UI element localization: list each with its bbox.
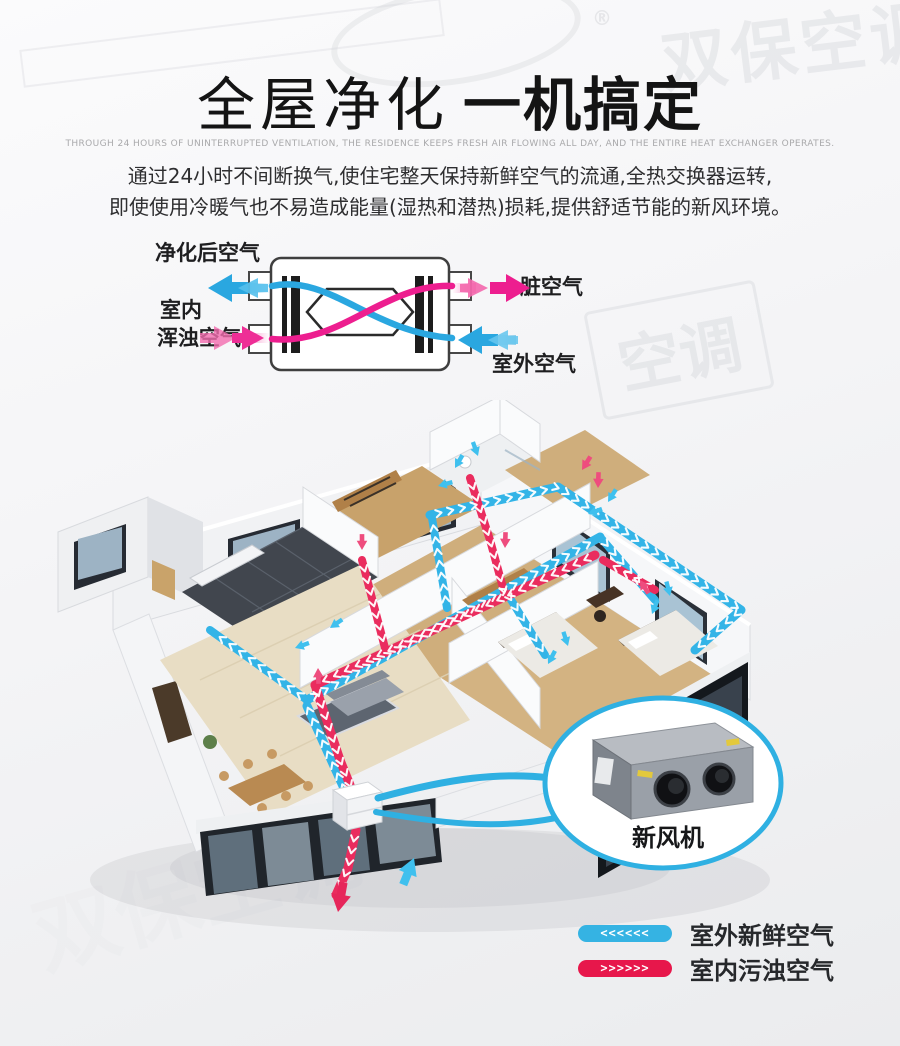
heat-exchanger-diagram: 净化后空气 室内 浑浊空气 脏空气 室外空气 [130, 235, 650, 395]
subtitle-english: THROUGH 24 HOURS OF UNINTERRUPTED VENTIL… [0, 139, 900, 149]
fresh-air-chevron-pill: <<<<<< [578, 925, 672, 942]
registered-mark: ® [592, 6, 612, 30]
description-line1: 通过24小时不间断换气,使住宅整天保持新鲜空气的流通,全热交换器运转, [0, 161, 900, 192]
polluted-air-chevron-pill: >>>>>> [578, 960, 672, 977]
title-bold: 一机搞定 [463, 71, 703, 139]
plant [203, 735, 217, 749]
label-outdoor-air: 室外空气 [492, 352, 576, 376]
label-indoor: 室内 [160, 298, 202, 322]
legend-fresh-air: <<<<<< 室外新鲜空气 [578, 925, 878, 942]
legend-fresh-air-label: 室外新鲜空气 [690, 916, 834, 951]
fresh-air-machine [593, 723, 753, 819]
indoor-unit [333, 782, 382, 830]
description-line2: 即使使用冷暖气也不易造成能量(湿热和潜热)损耗,提供舒适节能的新风环境。 [0, 192, 900, 223]
page-title: 全屋净化一机搞定 [0, 58, 900, 142]
label-purified-air: 净化后空气 [155, 241, 260, 265]
desk-chair [594, 610, 606, 622]
unit-callout: 新风机 [545, 698, 781, 868]
unit-label: 新风机 [632, 824, 704, 852]
legend: <<<<<< 室外新鲜空气 >>>>>> 室内污浊空气 [578, 925, 878, 995]
label-dirty-air: 脏空气 [520, 275, 583, 299]
legend-polluted-air-label: 室内污浊空气 [690, 951, 834, 986]
legend-polluted-air: >>>>>> 室内污浊空气 [578, 960, 878, 977]
house-illustration: 新风机 [0, 400, 900, 960]
title-light: 全屋净化 [197, 71, 449, 139]
promo-page: ® 双保空调 空调 双保空调 全屋净化一机搞定 THROUGH 24 HOURS… [0, 0, 900, 1046]
description: 通过24小时不间断换气,使住宅整天保持新鲜空气的流通,全热交换器运转, 即使使用… [0, 161, 900, 223]
